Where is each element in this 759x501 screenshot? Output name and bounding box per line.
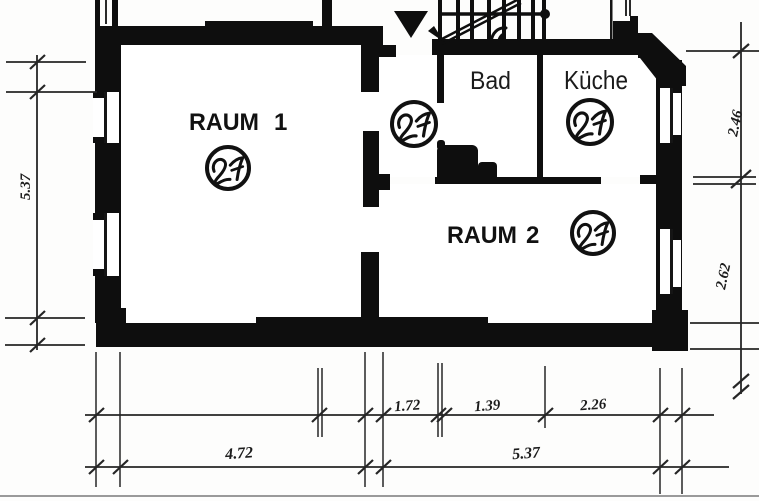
svg-text:RAUM: RAUM [447,222,517,249]
svg-text:1: 1 [274,109,287,136]
svg-text:1.72: 1.72 [394,397,422,415]
svg-text:5.37: 5.37 [512,444,542,463]
svg-text:Bad: Bad [470,67,511,95]
svg-text:2.26: 2.26 [579,396,608,414]
svg-text:4.72: 4.72 [224,444,254,463]
svg-text:2: 2 [526,222,539,249]
svg-text:5.37: 5.37 [18,173,34,200]
svg-text:RAUM: RAUM [189,109,259,136]
svg-text:1.39: 1.39 [474,397,502,415]
svg-text:Küche: Küche [564,65,628,95]
